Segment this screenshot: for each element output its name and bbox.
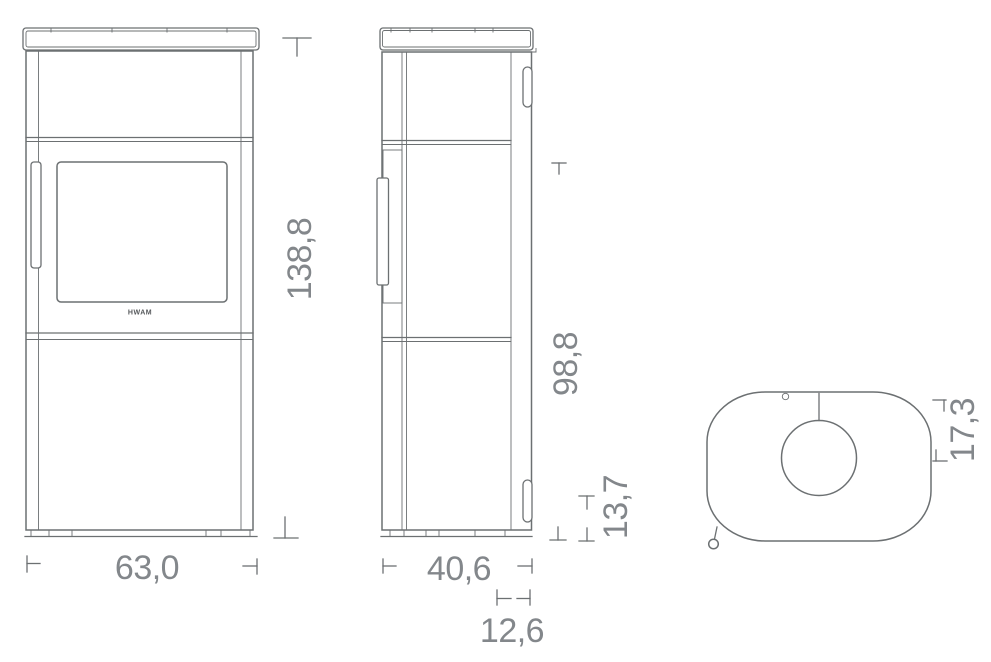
side-rear-outlet-top [523, 67, 532, 107]
side-body [382, 52, 532, 530]
dim-label-rear-offset: 12,6 [480, 614, 544, 648]
dim-tick-overall-height-bottom [274, 517, 298, 538]
front-body [26, 51, 253, 530]
top-handle-knob [709, 539, 719, 549]
side-rear-inlet-bottom [523, 480, 532, 522]
brand-logo: HWAM [128, 310, 152, 317]
side-view [377, 28, 536, 537]
side-feet-marks [390, 531, 505, 537]
dimension-ticks [27, 38, 947, 605]
dim-tick-rear-height-bottom [550, 527, 566, 540]
stove-dimension-drawing: 63,0 138,8 40,6 12,6 98,8 13,7 17,3 HWAM [0, 0, 991, 662]
dim-tick-inlet-height-top [579, 496, 594, 509]
front-view [23, 28, 259, 537]
dim-tick-rear-offset-right [517, 590, 530, 605]
dim-label-rear-height: 98,8 [549, 332, 583, 396]
dim-label-rear-inlet-height: 13,7 [599, 475, 633, 539]
side-top-plate-inner [383, 31, 531, 48]
top-damper-knob [782, 393, 788, 399]
dim-tick-rear-height-top [552, 163, 566, 174]
front-top-plate-inner [26, 31, 256, 47]
dim-label-front-width: 63,0 [115, 551, 179, 585]
dim-label-side-depth: 40,6 [427, 552, 491, 586]
dim-tick-inlet-height-bottom [579, 528, 594, 541]
dim-tick-depth-right [518, 559, 532, 573]
top-view [707, 392, 931, 549]
dim-tick-depth-left [383, 559, 396, 573]
top-handle-stem [715, 527, 718, 539]
front-feet-marks [31, 531, 250, 537]
dim-label-overall-height: 138,8 [283, 218, 317, 301]
dim-tick-overall-height-top [283, 38, 311, 56]
front-door-window [57, 162, 227, 302]
dim-tick-front-width-left [27, 556, 40, 572]
dim-tick-rear-offset-left [497, 590, 511, 605]
side-door-handle [377, 178, 389, 285]
dim-label-flue-center-from-back: 17,3 [946, 398, 980, 462]
top-flue-circle [782, 421, 857, 496]
front-door-handle [31, 162, 41, 268]
dim-tick-front-width-right [243, 559, 257, 574]
